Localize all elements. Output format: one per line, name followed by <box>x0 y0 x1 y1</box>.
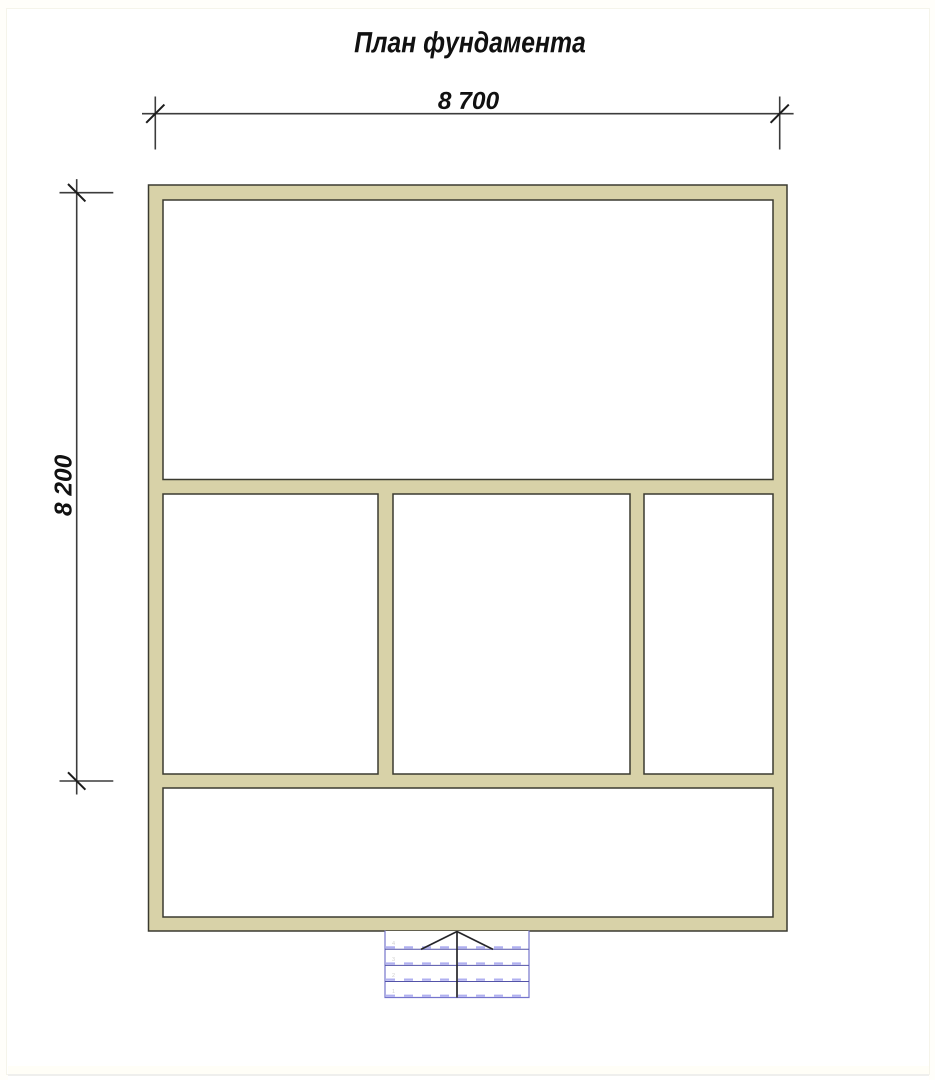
svg-text:3: 3 <box>392 957 395 963</box>
svg-text:1: 1 <box>392 989 395 995</box>
svg-text:2: 2 <box>392 973 395 979</box>
svg-text:4: 4 <box>392 941 395 947</box>
